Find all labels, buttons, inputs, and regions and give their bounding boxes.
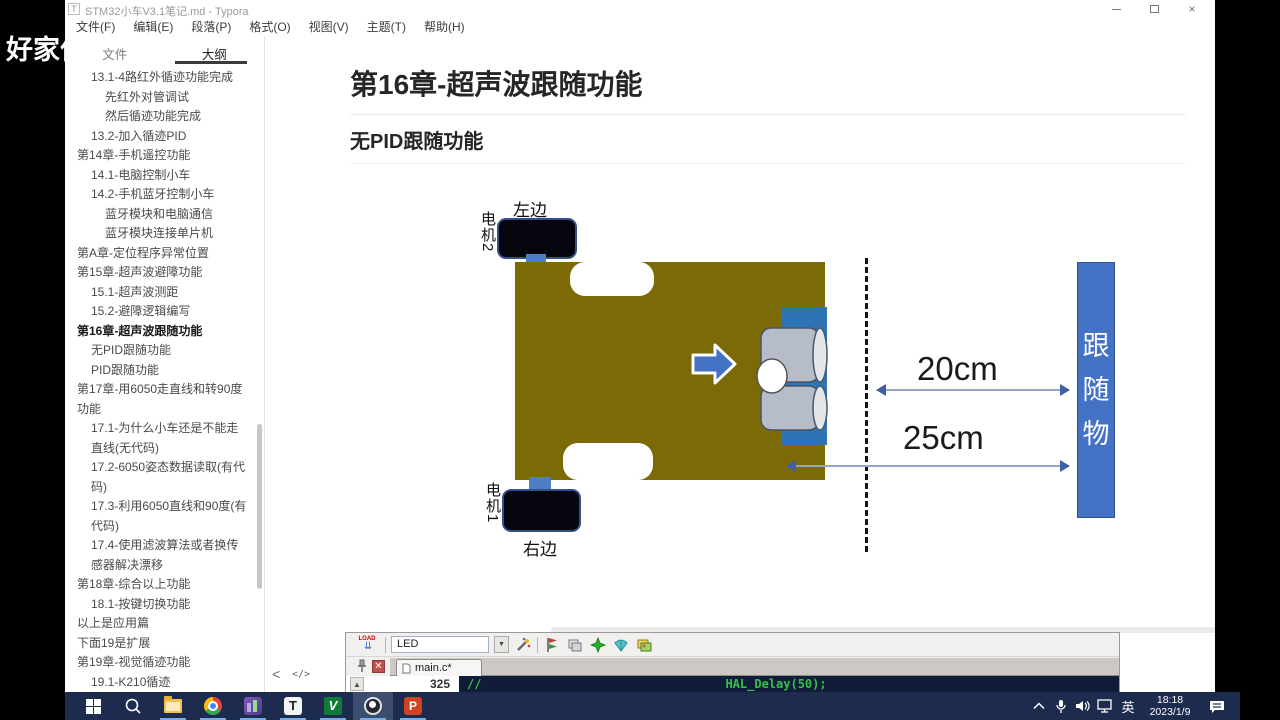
toolbar-separator xyxy=(385,637,386,653)
page-title: 第16章-超声波跟随功能 xyxy=(350,63,1186,115)
danmaku-watermark: 好家伙 xyxy=(6,28,65,67)
code-row: ▲ 325 //HAL_Delay(50); xyxy=(346,676,1119,693)
maximize-button[interactable] xyxy=(1135,0,1173,18)
outline-item[interactable]: 以上是应用篇 xyxy=(65,614,261,634)
manage-windows-button[interactable] xyxy=(566,636,584,654)
target-dropdown-button[interactable]: ▼ xyxy=(494,636,509,653)
distance-label-25cm: 25cm xyxy=(903,419,984,457)
tab-outline[interactable]: 大纲 xyxy=(165,36,265,64)
chrome-button[interactable] xyxy=(193,692,233,720)
outline-item-label: 19.1-K210循迹 xyxy=(91,675,170,689)
typora-titlebar[interactable]: T STM32小车V3.1笔记.md - Typora × xyxy=(65,0,1215,18)
powerpoint-taskbar-button[interactable]: P xyxy=(393,692,433,720)
outline-item-label: 第15章-超声波避障功能 xyxy=(77,265,202,279)
keil-taskbar-button[interactable]: V xyxy=(313,692,353,720)
follow-target: 跟 随 物 xyxy=(1077,262,1115,518)
close-button[interactable]: × xyxy=(1173,0,1211,18)
keil-tab-row: ✕ main.c* xyxy=(346,658,1119,676)
follow-target-char: 随 xyxy=(1083,377,1110,404)
ime-indicator[interactable]: 英 xyxy=(1116,692,1140,720)
active-tab-underline xyxy=(175,61,247,64)
outline-item[interactable]: 14.1-电脑控制小车 xyxy=(65,166,261,186)
code-statement: HAL_Delay(50); xyxy=(725,677,826,691)
clock[interactable]: 18:18 2023/1/9 xyxy=(1140,692,1200,720)
follow-diagram-image: 左边 电机2 电机1 右边 xyxy=(455,195,1135,575)
sidebar-scrollbar[interactable] xyxy=(257,424,262,589)
download-arrows-icon: ⇊ xyxy=(354,642,380,652)
menubar: 文件(F)编辑(E)段落(P)格式(O)视图(V)主题(T)帮助(H) xyxy=(65,18,1215,36)
outline-item-label: 第A章-定位程序异常位置 xyxy=(77,246,209,260)
outline-item-label: 第18章-综合以上功能 xyxy=(77,577,190,591)
typora-icon: T xyxy=(284,697,302,715)
purple-app-icon xyxy=(244,697,262,715)
document: 第16章-超声波跟随功能 无PID跟随功能 xyxy=(350,63,1186,164)
outline-item-label: 然后循迹功能完成 xyxy=(105,109,201,123)
distance-label-20cm: 20cm xyxy=(917,350,998,388)
sidebar-tabs: 文件 大纲 xyxy=(65,36,264,64)
purple-app-button[interactable] xyxy=(233,692,273,720)
outline-item-label: 无PID跟随功能 xyxy=(91,343,171,357)
video-black-bar-right xyxy=(1215,0,1280,692)
obs-icon xyxy=(364,697,382,715)
microphone-icon xyxy=(1055,699,1067,714)
outline-item[interactable]: 第17章-用6050走直线和转90度功能 xyxy=(65,380,261,419)
microphone-tray-button[interactable] xyxy=(1050,692,1072,720)
code-editor[interactable]: //HAL_Delay(50); xyxy=(459,676,1119,693)
monitor-network-icon xyxy=(1097,699,1114,713)
start-button[interactable] xyxy=(73,692,113,720)
tray-expand-button[interactable] xyxy=(1028,692,1050,720)
outline-item[interactable]: 第15章-超声波避障功能 xyxy=(65,263,261,283)
outline-item[interactable]: 蓝牙模块连接单片机 xyxy=(65,224,261,244)
maximize-icon xyxy=(1150,5,1159,13)
menu-item[interactable]: 主题(T) xyxy=(358,18,415,36)
obs-taskbar-button[interactable] xyxy=(353,692,393,720)
search-button[interactable] xyxy=(113,692,153,720)
outline-item-label: PID跟随功能 xyxy=(91,363,159,377)
outline-item[interactable]: 13.1-4路红外循迹功能完成 xyxy=(65,68,261,88)
taskbar: T V P xyxy=(65,692,1240,720)
menu-item[interactable]: 帮助(H) xyxy=(415,18,474,36)
outline-item-label: 第14章-手机遥控功能 xyxy=(77,148,190,162)
outline-item[interactable]: 19.1-K210循迹 xyxy=(65,673,261,693)
outline-item-label: 17.2-6050姿态数据读取(有代码) xyxy=(91,460,245,494)
outline-item-label: 14.2-手机蓝牙控制小车 xyxy=(91,187,214,201)
distance-arrow-20cm xyxy=(877,389,1069,391)
code-comment-slashes: // xyxy=(467,677,481,691)
outline-item[interactable]: 下面19是扩展 xyxy=(65,634,261,654)
outline-item[interactable]: 17.3-利用6050直线和90度(有代码) xyxy=(65,497,261,536)
powerpoint-icon: P xyxy=(404,697,422,715)
keil-window: LOAD ⇊ LED ▼ xyxy=(345,632,1120,692)
volume-tray-button[interactable] xyxy=(1072,692,1094,720)
time: 18:18 xyxy=(1157,694,1183,706)
outline-item[interactable]: 第14章-手机遥控功能 xyxy=(65,146,261,166)
outline-item[interactable]: 17.1-为什么小车还是不能走直线(无代码) xyxy=(65,419,261,458)
debug-flag-button[interactable] xyxy=(543,636,561,654)
outline-item[interactable]: 蓝牙模块和电脑通信 xyxy=(65,205,261,225)
toolbar-separator xyxy=(537,637,538,653)
car-cutout-top xyxy=(570,262,654,296)
sidebar: 文件 大纲 13.1-4路红外循迹功能完成先红外对管调试然后循迹功能完成13.2… xyxy=(65,36,265,692)
network-tray-button[interactable] xyxy=(1094,692,1116,720)
wheel-left xyxy=(497,218,577,259)
teal-fan-button[interactable] xyxy=(612,636,630,654)
label-motor2: 电机2 xyxy=(477,211,498,252)
chrome-icon xyxy=(204,697,222,715)
outline-item[interactable]: PID跟随功能 xyxy=(65,361,261,381)
outline-item[interactable]: 17.2-6050姿态数据读取(有代码) xyxy=(65,458,261,497)
document-icon xyxy=(402,663,411,674)
sidebar-collapse-icon[interactable]: < xyxy=(272,666,280,682)
outline-item[interactable]: 18.1-按键切换功能 xyxy=(65,595,261,615)
outline-item-label: 先红外对管调试 xyxy=(105,90,189,104)
outline-item-label: 13.1-4路红外循迹功能完成 xyxy=(91,70,233,84)
window-controls: × xyxy=(1097,0,1211,18)
follow-target-char: 跟 xyxy=(1083,333,1110,360)
images-button[interactable] xyxy=(635,636,653,654)
scroll-up-arrow[interactable]: ▲ xyxy=(350,677,364,691)
outline-item-label: 17.1-为什么小车还是不能走直线(无代码) xyxy=(91,421,238,455)
editor-tab-main-c[interactable]: main.c* xyxy=(396,659,482,676)
menu-item[interactable]: 格式(O) xyxy=(240,18,299,36)
typora-window: T STM32小车V3.1笔记.md - Typora × 文件(F)编辑(E)… xyxy=(65,0,1215,692)
source-code-mode-icon[interactable]: </> xyxy=(292,669,310,680)
pin-icon[interactable] xyxy=(356,659,368,673)
distance-arrow-25cm xyxy=(787,465,1069,467)
outline-item[interactable]: 17.4-使用滤波算法或者换传感器解决漂移 xyxy=(65,536,261,575)
outline-item-label: 下面19是扩展 xyxy=(77,636,150,650)
editor-tabbar: main.c* xyxy=(390,658,1119,676)
speaker-icon xyxy=(1075,699,1091,713)
date: 2023/1/9 xyxy=(1150,706,1191,718)
typora-app-icon: T xyxy=(68,3,80,15)
outline-item[interactable]: 无PID跟随功能 xyxy=(65,341,261,361)
menu-item[interactable]: 段落(P) xyxy=(182,18,240,36)
forward-arrow-icon xyxy=(691,342,737,391)
outline-item[interactable]: 13.2-加入循迹PID xyxy=(65,127,261,147)
outline-item-label: 第16章-超声波跟随功能 xyxy=(77,324,202,338)
outline-item[interactable]: 15.1-超声波测距 xyxy=(65,283,261,303)
outline-item-label: 17.4-使用滤波算法或者换传感器解决漂移 xyxy=(91,538,238,572)
outline-item-label: 第19章-视觉循迹功能 xyxy=(77,655,190,669)
outline-item[interactable]: 14.2-手机蓝牙控制小车 xyxy=(65,185,261,205)
outline-item[interactable]: 15.2-避障逻辑编写 xyxy=(65,302,261,322)
system-tray: 英 18:18 2023/1/9 xyxy=(1028,692,1234,720)
action-center-icon xyxy=(1209,699,1225,714)
options-for-target-wand-button[interactable] xyxy=(514,636,532,654)
outline-item[interactable]: 第19章-视觉循迹功能 xyxy=(65,653,261,673)
outline-item-label: 以上是应用篇 xyxy=(77,616,149,630)
label-motor1: 电机1 xyxy=(482,482,503,523)
menu-item[interactable]: 编辑(E) xyxy=(124,18,182,36)
close-icon: × xyxy=(1188,3,1195,15)
outline-item-label: 17.3-利用6050直线和90度(有代码) xyxy=(91,499,246,533)
line-number: 325 xyxy=(396,676,458,693)
window-title: STM32小车V3.1笔记.md - Typora xyxy=(85,3,249,19)
outline-item-label: 13.2-加入循迹PID xyxy=(91,129,186,143)
keil-toolbar: LOAD ⇊ LED ▼ xyxy=(346,633,1119,657)
menu-item[interactable]: 文件(F) xyxy=(67,18,124,36)
outline-item-label: 蓝牙模块连接单片机 xyxy=(105,226,213,240)
outline-item-label: 15.1-超声波测距 xyxy=(91,285,178,299)
folder-icon xyxy=(164,699,182,713)
outline-list: 13.1-4路红外循迹功能完成先红外对管调试然后循迹功能完成13.2-加入循迹P… xyxy=(65,68,261,692)
screen: T STM32小车V3.1笔记.md - Typora × 文件(F)编辑(E)… xyxy=(0,0,1280,720)
ultrasonic-sensor xyxy=(755,300,830,455)
chevron-up-icon xyxy=(1033,702,1045,710)
outline-item-label: 第17章-用6050走直线和转90度功能 xyxy=(77,382,242,416)
windows-logo-icon xyxy=(86,699,101,714)
file-explorer-button[interactable] xyxy=(153,692,193,720)
outline-item[interactable]: 第16章-超声波跟随功能 xyxy=(65,322,261,342)
menu-item[interactable]: 视图(V) xyxy=(300,18,358,36)
minimize-button[interactable] xyxy=(1097,0,1135,18)
label-right-side: 右边 xyxy=(523,535,557,560)
flash-download-button[interactable]: LOAD ⇊ xyxy=(354,636,380,654)
minimize-icon xyxy=(1112,9,1121,10)
outline-item-label: 蓝牙模块和电脑通信 xyxy=(105,207,213,221)
action-center-button[interactable] xyxy=(1200,692,1234,720)
panel-close-button[interactable]: ✕ xyxy=(372,660,385,673)
outline-item[interactable]: 第18章-综合以上功能 xyxy=(65,575,261,595)
wheel-right xyxy=(502,489,581,532)
target-select[interactable]: LED xyxy=(391,636,489,653)
outline-item[interactable]: 先红外对管调试 xyxy=(65,88,261,108)
outline-item-label: 14.1-电脑控制小车 xyxy=(91,168,190,182)
outline-item[interactable]: 然后循迹功能完成 xyxy=(65,107,261,127)
panel-controls: ✕ xyxy=(356,659,385,673)
green-star-button[interactable] xyxy=(589,636,607,654)
tab-files[interactable]: 文件 xyxy=(65,36,165,64)
search-icon xyxy=(124,697,142,715)
editor-tab-label: main.c* xyxy=(415,662,452,674)
section-title: 无PID跟随功能 xyxy=(350,125,1186,164)
outline-item-label: 18.1-按键切换功能 xyxy=(91,597,190,611)
reference-dashed-line xyxy=(865,258,868,552)
follow-target-char: 物 xyxy=(1083,421,1110,448)
typora-taskbar-button[interactable]: T xyxy=(273,692,313,720)
outline-item-label: 15.2-避障逻辑编写 xyxy=(91,304,190,318)
car-cutout-bottom xyxy=(563,443,653,480)
outline-item[interactable]: 第A章-定位程序异常位置 xyxy=(65,244,261,264)
video-black-bar-left: 好家伙 xyxy=(0,0,65,692)
keil-icon: V xyxy=(324,697,342,715)
word-count[interactable]: 23678 词 xyxy=(1190,668,1215,684)
